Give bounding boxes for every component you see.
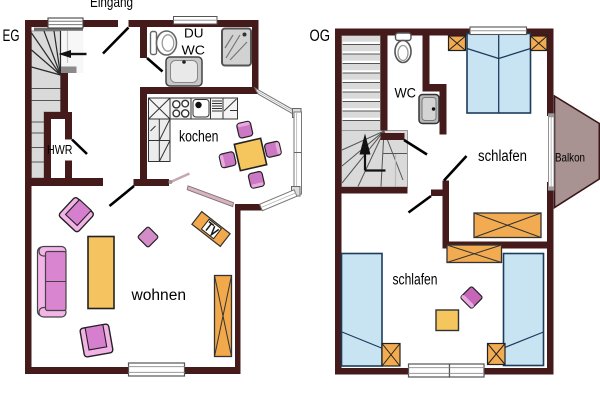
svg-text:HWR: HWR xyxy=(47,142,73,157)
svg-text:DU: DU xyxy=(184,26,204,41)
svg-text:WC: WC xyxy=(182,43,206,58)
svg-text:EG: EG xyxy=(3,26,20,45)
svg-text:WC: WC xyxy=(395,86,417,101)
svg-text:kochen: kochen xyxy=(179,129,219,146)
svg-text:Balkon: Balkon xyxy=(555,152,585,165)
svg-text:Eingang: Eingang xyxy=(90,0,133,11)
svg-text:OG: OG xyxy=(310,26,331,45)
svg-text:wohnen: wohnen xyxy=(130,287,186,304)
svg-text:schlafen: schlafen xyxy=(478,148,527,165)
svg-text:schlafen: schlafen xyxy=(393,272,438,289)
